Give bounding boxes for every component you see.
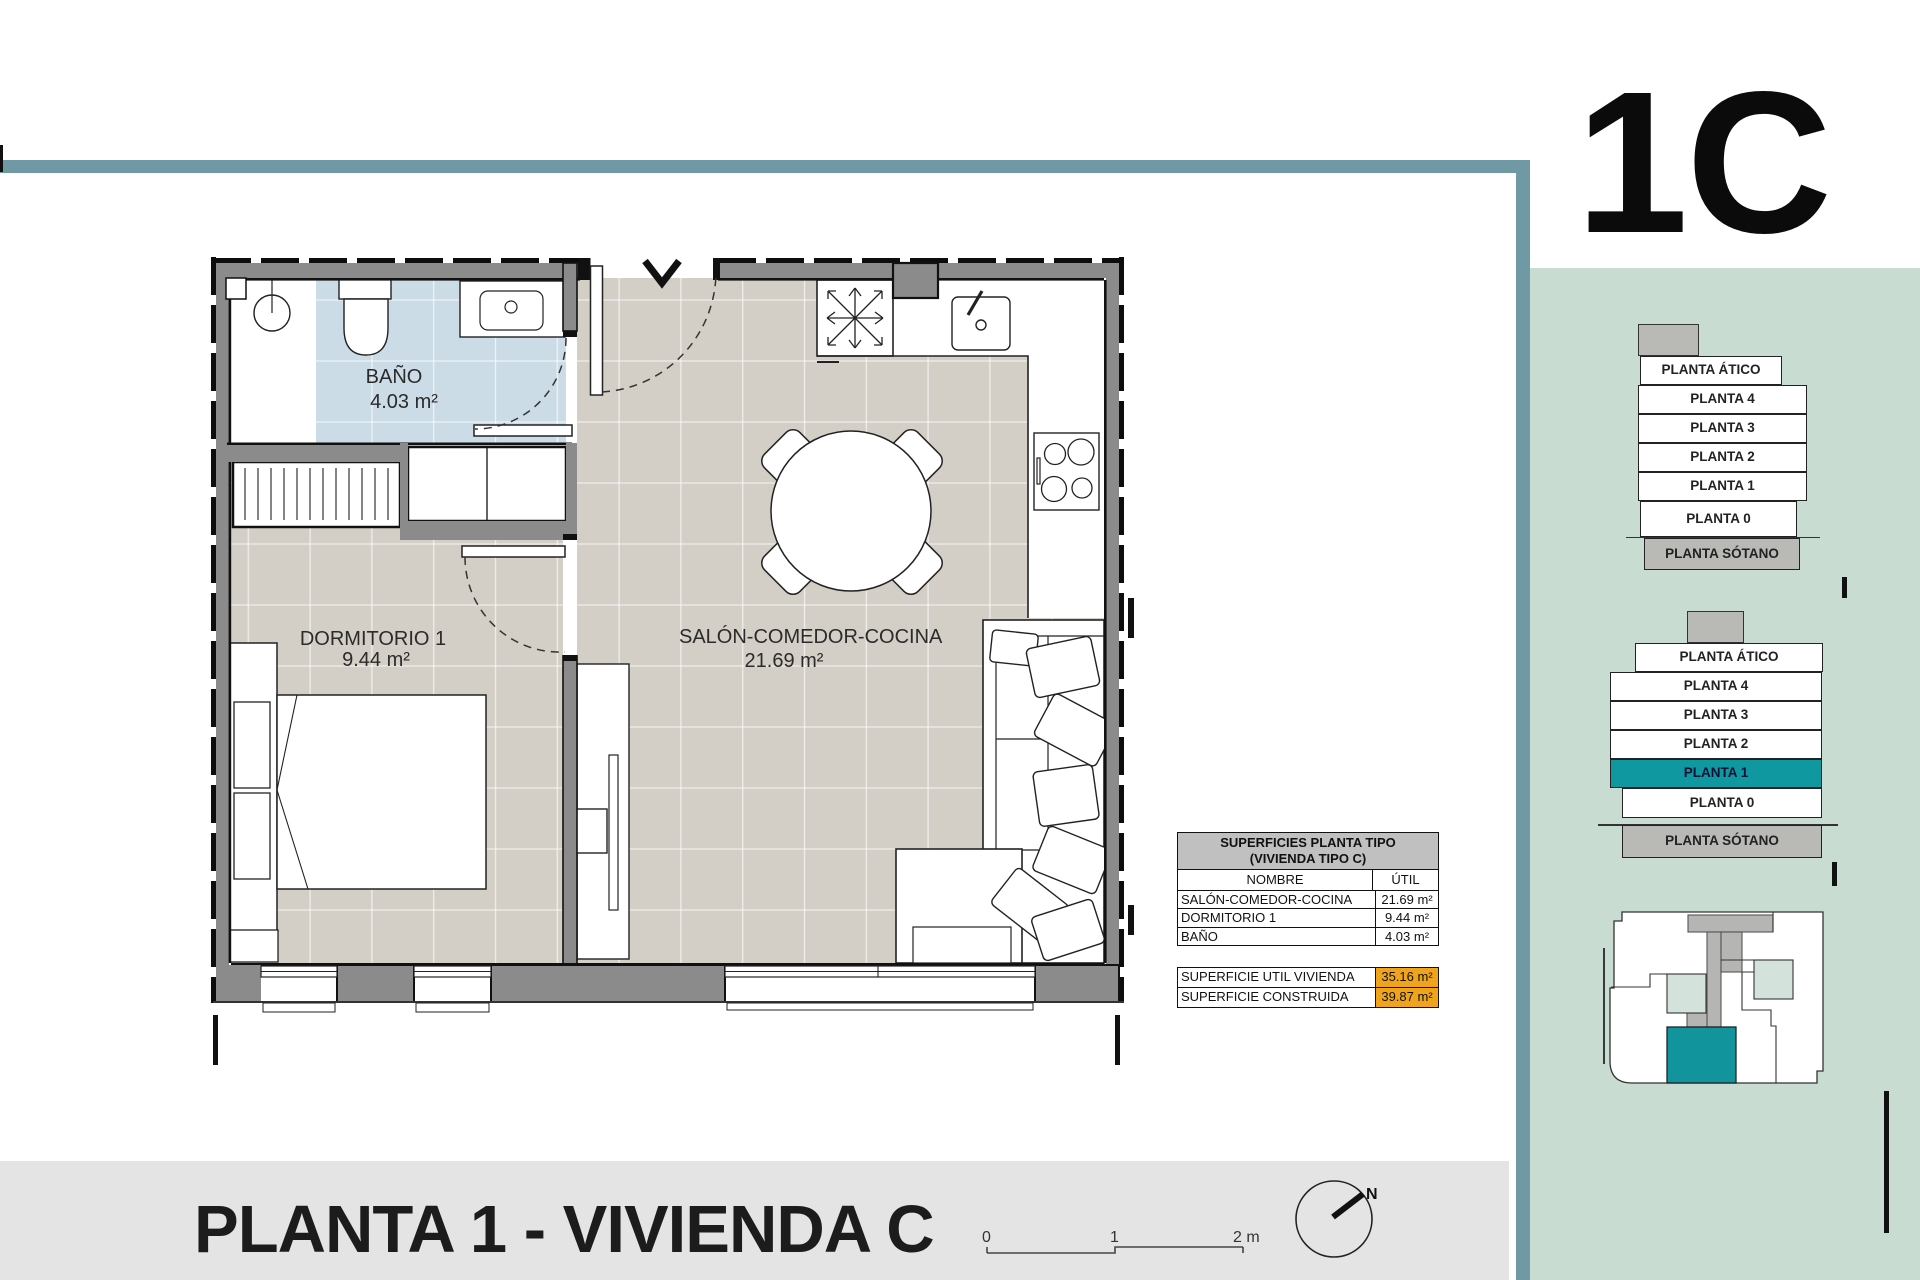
svg-text:2 m: 2 m	[1233, 1229, 1260, 1246]
svg-text:1: 1	[1110, 1229, 1119, 1246]
svg-text:0: 0	[982, 1229, 991, 1246]
svg-text:N: N	[1366, 1186, 1378, 1203]
